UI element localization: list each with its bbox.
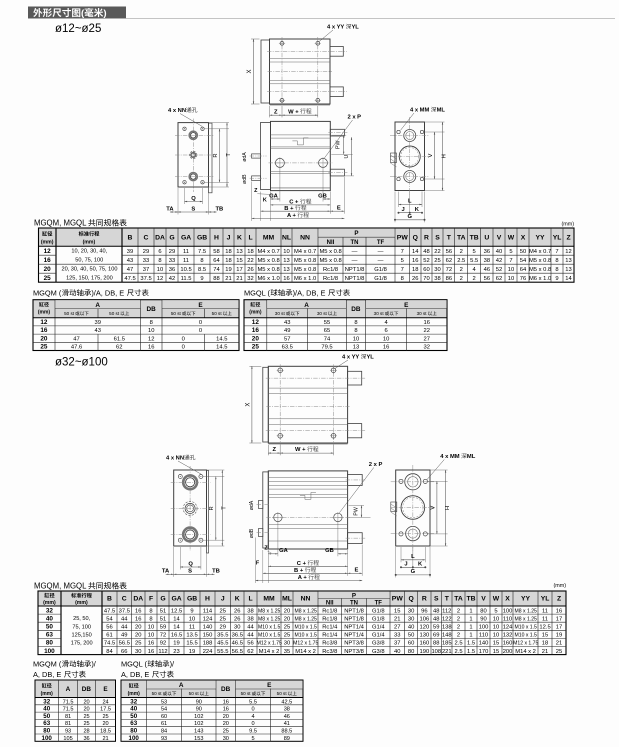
svg-text:20: 20 bbox=[284, 616, 290, 622]
svg-text:16: 16 bbox=[223, 707, 229, 713]
svg-text:YY: YY bbox=[521, 596, 531, 603]
svg-text:17: 17 bbox=[556, 624, 562, 630]
svg-text:2: 2 bbox=[457, 633, 460, 639]
svg-text:25: 25 bbox=[556, 649, 562, 655]
svg-text:NN: NN bbox=[301, 596, 311, 603]
svg-text:25: 25 bbox=[284, 624, 290, 630]
svg-text:0: 0 bbox=[199, 328, 202, 334]
svg-text:190: 190 bbox=[420, 649, 430, 655]
svg-text:20: 20 bbox=[223, 721, 229, 727]
svg-text:59: 59 bbox=[160, 624, 166, 630]
svg-text:M10 x 1.5: M10 x 1.5 bbox=[258, 624, 281, 630]
svg-text:16.5: 16.5 bbox=[171, 633, 182, 639]
svg-text:15: 15 bbox=[394, 608, 400, 614]
svg-text:27: 27 bbox=[394, 624, 400, 630]
svg-text:MM: MM bbox=[263, 596, 275, 603]
svg-text:22: 22 bbox=[434, 249, 440, 255]
svg-text:12.5: 12.5 bbox=[539, 624, 550, 630]
svg-text:R: R bbox=[422, 596, 427, 603]
svg-text:E: E bbox=[404, 302, 409, 309]
svg-text:GA: GA bbox=[279, 548, 289, 554]
svg-text:25: 25 bbox=[83, 721, 89, 727]
svg-text:13: 13 bbox=[236, 249, 242, 255]
svg-text:9: 9 bbox=[555, 276, 558, 282]
svg-text:M10 x 1.5: M10 x 1.5 bbox=[295, 624, 318, 630]
svg-text:19: 19 bbox=[173, 641, 179, 647]
svg-text:170: 170 bbox=[479, 649, 489, 655]
svg-text:J: J bbox=[404, 562, 407, 568]
svg-text:NII: NII bbox=[326, 601, 334, 607]
svg-text:10: 10 bbox=[493, 624, 499, 630]
svg-text:60: 60 bbox=[408, 641, 414, 647]
svg-text:16: 16 bbox=[283, 276, 289, 282]
svg-text:M10 x 1.5: M10 x 1.5 bbox=[295, 633, 318, 639]
svg-text:15: 15 bbox=[493, 649, 499, 655]
svg-text:YY: YY bbox=[536, 234, 546, 241]
svg-text:TA: TA bbox=[166, 206, 174, 212]
svg-text:NN: NN bbox=[300, 234, 310, 241]
svg-text:V: V bbox=[428, 153, 434, 157]
svg-text:V: V bbox=[430, 506, 436, 510]
svg-text:93: 93 bbox=[161, 736, 167, 742]
svg-text:1: 1 bbox=[469, 633, 472, 639]
svg-text:NPT3/8: NPT3/8 bbox=[344, 641, 364, 647]
svg-text:10: 10 bbox=[383, 336, 389, 342]
svg-text:15: 15 bbox=[236, 258, 242, 264]
svg-text:7: 7 bbox=[401, 249, 404, 255]
svg-text:16: 16 bbox=[148, 649, 154, 655]
svg-text:32: 32 bbox=[424, 345, 430, 351]
svg-text:20: 20 bbox=[83, 699, 89, 705]
svg-text:57: 57 bbox=[284, 336, 290, 342]
svg-text:50 st: 50 st bbox=[171, 311, 182, 316]
svg-text:18: 18 bbox=[247, 249, 253, 255]
svg-text:MGQL (: MGQL ( bbox=[121, 660, 148, 669]
svg-text:21: 21 bbox=[225, 276, 231, 282]
svg-text:M6 x 1.0: M6 x 1.0 bbox=[529, 276, 551, 282]
svg-text:11.5: 11.5 bbox=[181, 276, 192, 282]
svg-text:11: 11 bbox=[183, 249, 189, 255]
svg-text:E: E bbox=[354, 568, 358, 574]
svg-text:64: 64 bbox=[213, 258, 220, 264]
svg-text:YL: YL bbox=[553, 234, 562, 241]
svg-text:M6 x 1.0: M6 x 1.0 bbox=[294, 276, 316, 282]
svg-text:L: L bbox=[248, 596, 252, 603]
svg-text:44: 44 bbox=[121, 624, 128, 630]
svg-text:ødB: ødB bbox=[242, 174, 248, 184]
svg-text:200: 200 bbox=[503, 649, 513, 655]
svg-text:122: 122 bbox=[442, 616, 452, 622]
svg-text:18.5: 18.5 bbox=[100, 728, 111, 734]
svg-text:A: A bbox=[179, 682, 184, 689]
svg-text:9: 9 bbox=[200, 276, 203, 282]
svg-text:M4 x 0.7: M4 x 0.7 bbox=[529, 249, 551, 255]
svg-text:50 st: 50 st bbox=[109, 311, 120, 316]
svg-text:10: 10 bbox=[508, 276, 514, 282]
svg-text:F: F bbox=[149, 596, 153, 603]
svg-text:24: 24 bbox=[102, 699, 108, 705]
svg-text:125, 150, 175, 200: 125, 150, 175, 200 bbox=[66, 276, 113, 282]
svg-text:48: 48 bbox=[423, 249, 429, 255]
svg-text:W +: W + bbox=[295, 447, 306, 453]
svg-text:16: 16 bbox=[135, 608, 141, 614]
svg-text:ø12~ø25: ø12~ø25 bbox=[55, 23, 101, 35]
svg-text:Rc1/8: Rc1/8 bbox=[322, 608, 337, 614]
svg-text:S: S bbox=[191, 206, 195, 212]
svg-text:89: 89 bbox=[284, 736, 290, 742]
svg-text:18: 18 bbox=[412, 267, 418, 273]
svg-text:16: 16 bbox=[383, 345, 389, 351]
svg-text:11: 11 bbox=[542, 608, 548, 614]
svg-text:): ) bbox=[103, 8, 106, 19]
svg-text:C +: C + bbox=[289, 200, 299, 206]
svg-text:40: 40 bbox=[496, 249, 502, 255]
svg-text:90: 90 bbox=[196, 699, 202, 705]
svg-text:DB: DB bbox=[221, 686, 231, 693]
svg-text:47: 47 bbox=[127, 267, 133, 273]
svg-text:37.5: 37.5 bbox=[119, 608, 130, 614]
svg-text:65: 65 bbox=[324, 328, 330, 334]
svg-text:16: 16 bbox=[252, 327, 260, 334]
svg-text:132: 132 bbox=[503, 633, 513, 639]
svg-text:25: 25 bbox=[44, 275, 52, 282]
svg-text:30: 30 bbox=[234, 624, 240, 630]
svg-text:88.5: 88.5 bbox=[281, 728, 292, 734]
svg-text:X: X bbox=[521, 234, 526, 241]
svg-text:52: 52 bbox=[496, 267, 502, 273]
svg-text:46: 46 bbox=[284, 714, 290, 720]
svg-text:93: 93 bbox=[65, 728, 71, 734]
svg-text:52: 52 bbox=[423, 258, 429, 264]
svg-text:15: 15 bbox=[493, 641, 499, 647]
svg-text:46.5: 46.5 bbox=[232, 641, 243, 647]
svg-text:M14 x 2: M14 x 2 bbox=[295, 649, 316, 655]
svg-text:60: 60 bbox=[423, 267, 429, 273]
svg-text:50 st: 50 st bbox=[212, 311, 223, 316]
svg-text:72: 72 bbox=[446, 267, 452, 273]
svg-text:40: 40 bbox=[46, 615, 54, 622]
svg-text:62: 62 bbox=[446, 258, 452, 264]
svg-text:1: 1 bbox=[469, 624, 472, 630]
svg-text:60: 60 bbox=[161, 714, 167, 720]
svg-text:2.5: 2.5 bbox=[455, 641, 463, 647]
svg-text:54: 54 bbox=[161, 707, 167, 713]
svg-text:32: 32 bbox=[247, 276, 253, 282]
svg-text:4 x YY: 4 x YY bbox=[327, 25, 344, 31]
svg-text:TA: TA bbox=[162, 569, 170, 575]
svg-text:—: — bbox=[378, 258, 384, 264]
svg-text:YL: YL bbox=[366, 355, 374, 361]
svg-text:U: U bbox=[344, 154, 350, 158]
svg-text:13.5: 13.5 bbox=[186, 633, 197, 639]
svg-text:18: 18 bbox=[225, 249, 231, 255]
svg-text:M8 x 1.25: M8 x 1.25 bbox=[258, 616, 281, 622]
svg-text:160: 160 bbox=[503, 641, 513, 647]
svg-text:29: 29 bbox=[169, 249, 175, 255]
svg-text:74: 74 bbox=[213, 267, 220, 273]
svg-text:20: 20 bbox=[135, 633, 141, 639]
svg-text:48: 48 bbox=[433, 616, 439, 622]
svg-text:NII: NII bbox=[327, 240, 335, 246]
svg-text:MM: MM bbox=[263, 234, 275, 241]
svg-text:E: E bbox=[103, 686, 108, 693]
svg-text:40: 40 bbox=[408, 624, 414, 630]
svg-text:M12 x 1.75: M12 x 1.75 bbox=[293, 641, 318, 647]
svg-text:M14 x 2: M14 x 2 bbox=[515, 649, 536, 655]
svg-text:36: 36 bbox=[83, 736, 89, 742]
svg-text:16: 16 bbox=[44, 257, 52, 264]
svg-text:10: 10 bbox=[148, 624, 154, 630]
svg-text:59: 59 bbox=[433, 624, 439, 630]
svg-text:33: 33 bbox=[394, 633, 400, 639]
svg-text:4 x NN: 4 x NN bbox=[166, 456, 184, 462]
svg-text:48: 48 bbox=[433, 608, 439, 614]
svg-text:4 x YY: 4 x YY bbox=[342, 355, 359, 361]
svg-text:(mm): (mm) bbox=[75, 600, 88, 606]
svg-text:2: 2 bbox=[460, 267, 463, 273]
svg-text:(mm): (mm) bbox=[41, 691, 54, 697]
svg-text:M5 x 0.8: M5 x 0.8 bbox=[529, 258, 551, 264]
svg-text:U: U bbox=[484, 234, 489, 241]
svg-text:2: 2 bbox=[460, 276, 463, 282]
svg-text:9.5: 9.5 bbox=[249, 728, 257, 734]
svg-text:35.5: 35.5 bbox=[217, 633, 228, 639]
svg-text:NPT1/8: NPT1/8 bbox=[344, 608, 364, 614]
svg-text:56: 56 bbox=[247, 641, 253, 647]
svg-text:61: 61 bbox=[161, 721, 167, 727]
svg-text:5.5: 5.5 bbox=[470, 258, 478, 264]
svg-text:20: 20 bbox=[102, 721, 108, 727]
svg-text:(mm): (mm) bbox=[43, 600, 56, 606]
svg-text:112: 112 bbox=[442, 608, 451, 614]
svg-text:47.5: 47.5 bbox=[124, 276, 135, 282]
svg-text:56.5: 56.5 bbox=[232, 649, 243, 655]
svg-text:32: 32 bbox=[46, 607, 54, 614]
svg-text:185: 185 bbox=[442, 641, 452, 647]
svg-text:ML: ML bbox=[467, 454, 476, 460]
svg-text:20: 20 bbox=[223, 714, 229, 720]
svg-text:40: 40 bbox=[130, 706, 137, 713]
svg-text:15: 15 bbox=[542, 633, 548, 639]
svg-text:)/A, DB, E: )/A, DB, E bbox=[91, 288, 124, 297]
svg-text:27: 27 bbox=[424, 336, 430, 342]
svg-text:110: 110 bbox=[503, 616, 512, 622]
svg-text:M8 x 1.25: M8 x 1.25 bbox=[295, 608, 318, 614]
svg-text:14: 14 bbox=[173, 624, 180, 630]
svg-text:36: 36 bbox=[169, 267, 175, 273]
svg-text:7: 7 bbox=[555, 249, 558, 255]
svg-text:42.5: 42.5 bbox=[281, 699, 292, 705]
svg-text:20: 20 bbox=[135, 624, 141, 630]
svg-text:Q: Q bbox=[188, 561, 193, 567]
svg-text:47: 47 bbox=[73, 336, 79, 342]
svg-text:61: 61 bbox=[106, 633, 112, 639]
svg-text:13: 13 bbox=[283, 267, 289, 273]
svg-text:8: 8 bbox=[555, 267, 558, 273]
svg-text:PW: PW bbox=[336, 141, 342, 149]
svg-text:25: 25 bbox=[252, 344, 260, 351]
svg-text:A +: A + bbox=[298, 575, 308, 581]
svg-text:G: G bbox=[169, 234, 174, 241]
svg-text:)/A, DB, E: )/A, DB, E bbox=[293, 288, 326, 297]
svg-text:M8 x 1.25: M8 x 1.25 bbox=[295, 616, 318, 622]
svg-text:YL: YL bbox=[541, 596, 550, 603]
svg-text:8: 8 bbox=[149, 616, 152, 622]
svg-text:140: 140 bbox=[479, 641, 489, 647]
svg-text:25: 25 bbox=[284, 633, 290, 639]
svg-text:221: 221 bbox=[442, 649, 452, 655]
svg-text:A: A bbox=[95, 302, 100, 309]
svg-text:10: 10 bbox=[508, 267, 514, 273]
svg-text:90: 90 bbox=[196, 707, 202, 713]
svg-text:2 x P: 2 x P bbox=[369, 462, 383, 468]
svg-text:70: 70 bbox=[423, 276, 429, 282]
svg-text:M5 x 0.8: M5 x 0.8 bbox=[529, 267, 551, 273]
svg-text:16: 16 bbox=[223, 699, 229, 705]
svg-text:13: 13 bbox=[565, 267, 571, 273]
svg-text:NPT1/4: NPT1/4 bbox=[344, 624, 364, 630]
svg-text:69: 69 bbox=[433, 633, 439, 639]
svg-text:38: 38 bbox=[284, 707, 290, 713]
svg-text:0: 0 bbox=[251, 721, 254, 727]
svg-text:L: L bbox=[408, 199, 412, 205]
svg-text:8: 8 bbox=[150, 320, 153, 326]
svg-text:K: K bbox=[263, 198, 267, 204]
svg-text:12: 12 bbox=[157, 276, 163, 282]
svg-text:NL: NL bbox=[282, 234, 291, 241]
svg-text:2: 2 bbox=[457, 608, 460, 614]
svg-text:90: 90 bbox=[480, 616, 486, 622]
svg-text:45.5: 45.5 bbox=[217, 641, 228, 647]
svg-text:25: 25 bbox=[220, 616, 226, 622]
svg-text:G1/8: G1/8 bbox=[374, 267, 387, 273]
svg-text:—: — bbox=[352, 258, 358, 264]
svg-text:39: 39 bbox=[127, 249, 133, 255]
svg-text:M12 x 1.75: M12 x 1.75 bbox=[513, 641, 538, 647]
svg-text:Rc3/8: Rc3/8 bbox=[322, 649, 337, 655]
svg-text:GA: GA bbox=[171, 596, 181, 603]
svg-text:TB: TB bbox=[467, 596, 476, 603]
svg-text:E: E bbox=[337, 206, 341, 212]
svg-text:P: P bbox=[352, 592, 356, 599]
svg-text:40: 40 bbox=[43, 706, 50, 713]
svg-text:75, 100: 75, 100 bbox=[72, 624, 91, 630]
svg-text:(mm): (mm) bbox=[38, 309, 51, 315]
svg-text:20: 20 bbox=[284, 608, 290, 614]
svg-text:DB: DB bbox=[82, 686, 92, 693]
svg-text:88: 88 bbox=[433, 641, 439, 647]
svg-text:Rc1/8: Rc1/8 bbox=[323, 267, 338, 273]
svg-text:C +: C + bbox=[297, 561, 307, 567]
svg-text:M5 x 0.8: M5 x 0.8 bbox=[319, 249, 341, 255]
svg-text:55.5: 55.5 bbox=[217, 649, 228, 655]
svg-text:175, 200: 175, 200 bbox=[71, 640, 93, 646]
svg-text:21: 21 bbox=[394, 616, 400, 622]
svg-text:S: S bbox=[435, 234, 440, 241]
svg-text:(mm): (mm) bbox=[83, 240, 96, 246]
svg-text:33: 33 bbox=[169, 258, 175, 264]
svg-text:100: 100 bbox=[129, 735, 140, 742]
svg-text:W +: W + bbox=[288, 109, 299, 115]
svg-text:32: 32 bbox=[43, 698, 50, 705]
svg-text:79.5: 79.5 bbox=[321, 345, 332, 351]
svg-text:105: 105 bbox=[63, 736, 72, 742]
svg-text:12: 12 bbox=[44, 248, 52, 255]
svg-text:G1/8: G1/8 bbox=[372, 616, 385, 622]
svg-text:DA: DA bbox=[133, 596, 143, 603]
svg-text:R: R bbox=[424, 234, 429, 241]
svg-text:41: 41 bbox=[284, 721, 290, 727]
svg-text:16: 16 bbox=[412, 258, 418, 264]
svg-text:26: 26 bbox=[412, 276, 418, 282]
svg-text:25: 25 bbox=[83, 714, 89, 720]
svg-text:Rc3/8: Rc3/8 bbox=[322, 641, 337, 647]
svg-text:114: 114 bbox=[203, 608, 213, 614]
svg-text:10: 10 bbox=[283, 249, 289, 255]
svg-text:148: 148 bbox=[442, 633, 452, 639]
svg-text:62: 62 bbox=[247, 649, 253, 655]
svg-text:TB: TB bbox=[470, 234, 479, 241]
svg-text:40: 40 bbox=[394, 649, 400, 655]
svg-text:DA: DA bbox=[155, 234, 165, 241]
svg-text:1.5: 1.5 bbox=[467, 641, 475, 647]
svg-text:224: 224 bbox=[203, 649, 213, 655]
svg-text:20, 30, 40, 50, 75, 100: 20, 30, 40, 50, 75, 100 bbox=[61, 267, 117, 273]
svg-text:M4 x 0.7: M4 x 0.7 bbox=[294, 249, 316, 255]
svg-text:0: 0 bbox=[182, 345, 185, 351]
svg-text:14: 14 bbox=[565, 276, 572, 282]
svg-text:29: 29 bbox=[143, 249, 149, 255]
svg-text:H: H bbox=[214, 234, 219, 241]
svg-text:25: 25 bbox=[40, 344, 48, 351]
svg-text:J: J bbox=[402, 207, 405, 213]
svg-text:8: 8 bbox=[200, 258, 203, 264]
svg-text:A, DB, E: A, DB, E bbox=[33, 670, 61, 679]
svg-text:47.6: 47.6 bbox=[71, 345, 82, 351]
svg-text:22: 22 bbox=[247, 258, 253, 264]
svg-text:NPT1/8: NPT1/8 bbox=[345, 276, 365, 282]
svg-text:G1/4: G1/4 bbox=[372, 633, 385, 639]
svg-text:M8 x 1.25: M8 x 1.25 bbox=[515, 616, 538, 622]
svg-text:160: 160 bbox=[420, 641, 430, 647]
svg-text:8.5: 8.5 bbox=[198, 267, 206, 273]
svg-text:2 x P: 2 x P bbox=[348, 115, 362, 121]
svg-text:37.5: 37.5 bbox=[140, 276, 151, 282]
svg-text:49: 49 bbox=[121, 633, 127, 639]
svg-text:B: B bbox=[107, 596, 112, 603]
svg-text:H: H bbox=[442, 154, 448, 158]
svg-text:21: 21 bbox=[102, 736, 108, 742]
svg-text:P: P bbox=[354, 230, 358, 237]
svg-text:25: 25 bbox=[223, 728, 229, 734]
svg-text:B: B bbox=[128, 234, 133, 241]
svg-text:50: 50 bbox=[43, 713, 50, 720]
svg-text:18: 18 bbox=[225, 258, 231, 264]
svg-text:30 st: 30 st bbox=[374, 311, 385, 316]
svg-text:MGQM (: MGQM ( bbox=[33, 660, 62, 669]
svg-text:72: 72 bbox=[160, 633, 166, 639]
svg-text:25: 25 bbox=[135, 641, 141, 647]
svg-text:100: 100 bbox=[479, 624, 489, 630]
svg-text:G: G bbox=[407, 214, 412, 220]
svg-text:7.5: 7.5 bbox=[198, 249, 206, 255]
svg-text:(mm): (mm) bbox=[561, 222, 574, 228]
svg-text:DB: DB bbox=[351, 306, 361, 313]
svg-text:80: 80 bbox=[408, 649, 414, 655]
svg-text:G1/8: G1/8 bbox=[372, 608, 385, 614]
svg-text:—: — bbox=[378, 249, 384, 255]
svg-text:PW: PW bbox=[397, 234, 409, 241]
